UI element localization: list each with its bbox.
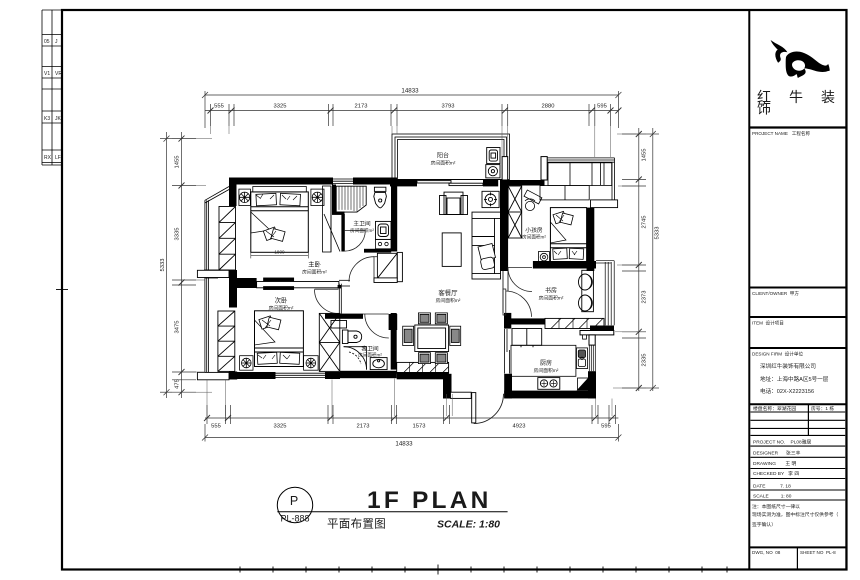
svg-text:次卧: 次卧 — [275, 296, 288, 305]
svg-text:SHEET NO PL-8: SHEET NO PL-8 — [800, 550, 836, 555]
svg-text:厨房: 厨房 — [540, 359, 552, 367]
svg-text:CLIENT/OWNER 甲方: CLIENT/OWNER 甲方 — [752, 290, 799, 297]
svg-text:3793: 3793 — [442, 104, 455, 110]
svg-text:DESIGNER 张三丰: DESIGNER 张三丰 — [753, 450, 801, 457]
svg-text:P: P — [290, 494, 298, 508]
svg-text:LF: LF — [55, 155, 61, 161]
svg-text:现场实测为准，图中标注尺寸仅供参考（: 现场实测为准，图中标注尺寸仅供参考（ — [752, 511, 839, 518]
svg-text:小孩房: 小孩房 — [525, 226, 543, 234]
svg-text:K3: K3 — [44, 116, 50, 122]
svg-text:装: 装 — [821, 89, 835, 105]
svg-text:14833: 14833 — [401, 88, 419, 95]
svg-text:1F PLAN: 1F PLAN — [367, 487, 492, 514]
svg-text:主卫间: 主卫间 — [353, 220, 371, 228]
svg-text:3325: 3325 — [274, 424, 287, 430]
svg-text:555: 555 — [214, 104, 224, 110]
svg-text:3325: 3325 — [274, 104, 287, 110]
svg-text:楼盘名称：翠湖花园: 楼盘名称：翠湖花园 — [753, 405, 796, 412]
svg-text:475: 475 — [175, 379, 181, 389]
svg-text:房间面积m²: 房间面积m² — [302, 269, 327, 276]
svg-text:RX: RX — [44, 155, 52, 161]
svg-text:DESIGN FIRM 设计单位: DESIGN FIRM 设计单位 — [752, 351, 803, 358]
svg-text:客餐厅: 客餐厅 — [438, 288, 458, 297]
svg-text:PROJECT NO. PL08雅居: PROJECT NO. PL08雅居 — [753, 439, 811, 446]
svg-text:客卫间: 客卫间 — [361, 345, 379, 353]
svg-text:饰: 饰 — [757, 101, 771, 117]
svg-text:5333: 5333 — [655, 227, 661, 240]
svg-text:DWG, NO 08: DWG, NO 08 — [752, 550, 781, 555]
svg-text:房间面积m²: 房间面积m² — [358, 352, 382, 359]
svg-text:2173: 2173 — [357, 424, 370, 430]
svg-text:3335: 3335 — [175, 228, 181, 241]
svg-text:注：本图纸尺寸一律以: 注：本图纸尺寸一律以 — [752, 503, 800, 510]
svg-text:阳台: 阳台 — [437, 152, 449, 160]
svg-text:2173: 2173 — [355, 104, 368, 110]
svg-text:3475: 3475 — [175, 321, 181, 334]
svg-text:DRAWING 王 明: DRAWING 王 明 — [753, 461, 796, 467]
svg-text:房间面积m²: 房间面积m² — [269, 305, 294, 312]
svg-text:房间面积m²: 房间面积m² — [350, 227, 374, 234]
svg-text:2373: 2373 — [642, 291, 648, 304]
svg-text:05: 05 — [44, 39, 50, 45]
svg-text:595: 595 — [597, 104, 607, 110]
svg-text:房间面积m²: 房间面积m² — [534, 367, 559, 374]
svg-text:2745: 2745 — [642, 216, 648, 229]
svg-text:2335: 2335 — [642, 354, 648, 367]
svg-text:VR: VR — [55, 71, 62, 77]
svg-text:地址：上海中路A区5号一层: 地址：上海中路A区5号一层 — [760, 375, 829, 383]
svg-text:1455: 1455 — [175, 156, 181, 169]
svg-text:5333: 5333 — [160, 259, 166, 272]
svg-text:深圳红牛装饰有限公司: 深圳红牛装饰有限公司 — [760, 362, 816, 370]
svg-text:书房: 书房 — [545, 287, 557, 295]
svg-text:555: 555 — [211, 424, 221, 430]
svg-text:房间面积m²: 房间面积m² — [539, 295, 564, 302]
svg-text:4923: 4923 — [513, 424, 526, 430]
svg-text:1573: 1573 — [413, 424, 426, 430]
svg-text:房间面积m²: 房间面积m² — [436, 297, 461, 304]
svg-text:签字确认）: 签字确认） — [752, 521, 776, 528]
svg-text:595: 595 — [601, 424, 611, 430]
svg-text:房号：1 栋: 房号：1 栋 — [811, 405, 834, 412]
svg-text:主卧: 主卧 — [308, 260, 321, 269]
svg-text:1800: 1800 — [274, 250, 285, 255]
svg-text:牛: 牛 — [789, 89, 803, 105]
svg-text:房间面积m²: 房间面积m² — [431, 160, 456, 167]
svg-text:PL-888: PL-888 — [280, 514, 309, 524]
svg-text:SCALE: 1:80: SCALE: 1:80 — [437, 519, 500, 531]
svg-text:SCALE 1: 80: SCALE 1: 80 — [753, 494, 792, 500]
svg-text:V1: V1 — [44, 71, 50, 77]
svg-text:DATE 7. 18: DATE 7. 18 — [753, 484, 791, 490]
svg-text:ITEM 设计项目: ITEM 设计项目 — [752, 320, 784, 327]
svg-text:1455: 1455 — [642, 149, 648, 162]
svg-text:房间面积m²: 房间面积m² — [522, 234, 546, 241]
svg-text:CHECKED BY 李 四: CHECKED BY 李 四 — [753, 470, 799, 477]
svg-text:平面布置图: 平面布置图 — [327, 518, 386, 531]
svg-text:电话：02X-X2223156: 电话：02X-X2223156 — [760, 387, 814, 395]
svg-text:JK: JK — [55, 116, 62, 122]
svg-text:2880: 2880 — [542, 104, 555, 110]
svg-text:14833: 14833 — [395, 441, 413, 448]
svg-text:PROJECT NAME 工程名称: PROJECT NAME 工程名称 — [752, 130, 811, 137]
